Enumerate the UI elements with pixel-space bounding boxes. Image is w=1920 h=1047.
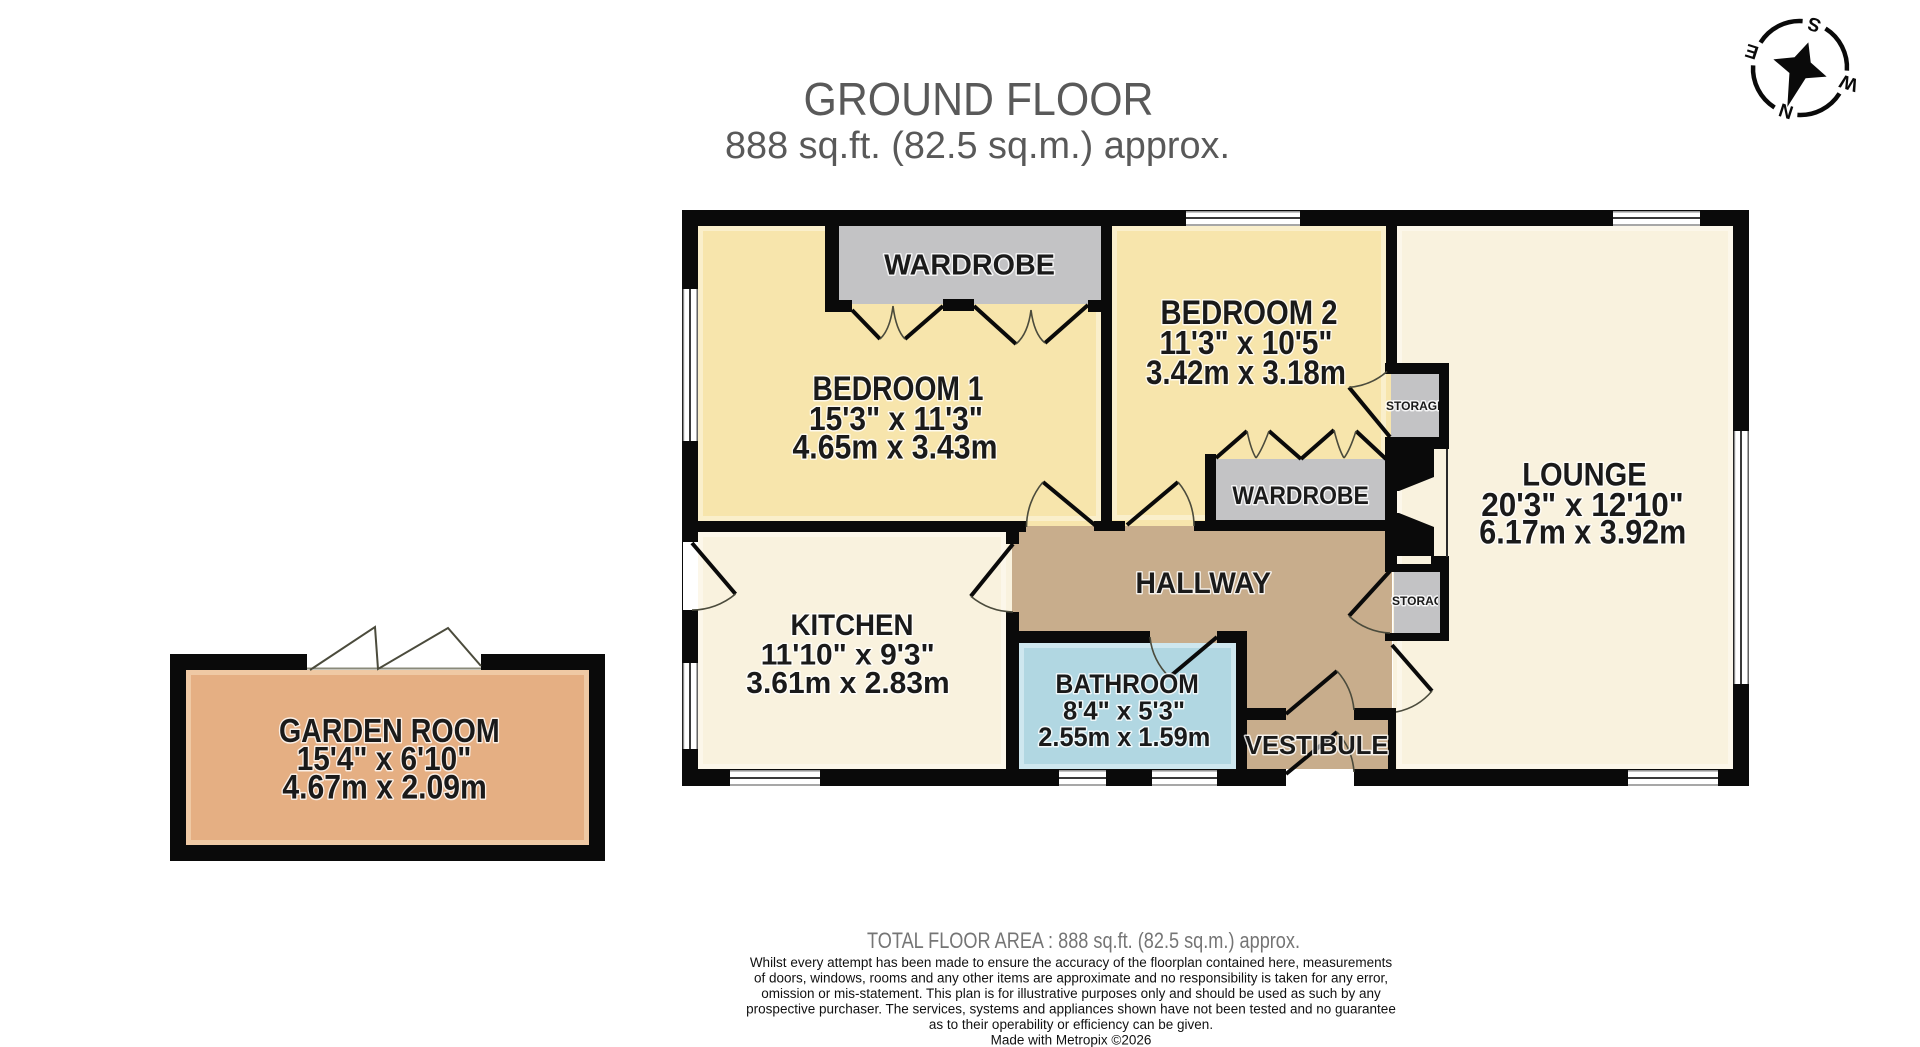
svg-text:2.55m x 1.59m: 2.55m x 1.59m [1038, 722, 1210, 752]
svg-text:of doors, windows, rooms and a: of doors, windows, rooms and any other i… [754, 971, 1388, 986]
svg-text:TOTAL FLOOR AREA : 888 sq.ft.: TOTAL FLOOR AREA : 888 sq.ft. (82.5 sq.m… [867, 928, 1300, 953]
svg-text:STORAGE: STORAGE [1386, 399, 1445, 413]
svg-text:WARDROBE: WARDROBE [1232, 482, 1368, 510]
svg-text:KITCHEN: KITCHEN [791, 609, 914, 642]
svg-text:6.17m x 3.92m: 6.17m x 3.92m [1479, 514, 1686, 552]
svg-text:WARDROBE: WARDROBE [884, 250, 1055, 282]
svg-text:4.67m x 2.09m: 4.67m x 2.09m [282, 769, 487, 807]
svg-text:VESTIBULE: VESTIBULE [1245, 730, 1389, 760]
svg-text:BATHROOM: BATHROOM [1056, 669, 1199, 699]
svg-text:HALLWAY: HALLWAY [1135, 567, 1271, 600]
svg-text:3.42m x 3.18m: 3.42m x 3.18m [1146, 354, 1346, 392]
svg-text:as to their operability or eff: as to their operability or efficiency ca… [929, 1017, 1213, 1032]
svg-text:Made with Metropix ©2026: Made with Metropix ©2026 [991, 1033, 1152, 1047]
svg-text:omission or mis-statement. Thi: omission or mis-statement. This plan is … [761, 986, 1381, 1001]
svg-text:GROUND FLOOR: GROUND FLOOR [804, 73, 1154, 125]
svg-text:888 sq.ft. (82.5 sq.m.) approx: 888 sq.ft. (82.5 sq.m.) approx. [725, 125, 1230, 167]
svg-text:prospective purchaser. The ser: prospective purchaser. The services, sys… [746, 1002, 1396, 1017]
svg-text:8'4" x 5'3": 8'4" x 5'3" [1063, 696, 1185, 726]
svg-text:3.61m x 2.83m: 3.61m x 2.83m [746, 665, 949, 700]
svg-text:Whilst every attempt has been: Whilst every attempt has been made to en… [750, 955, 1393, 970]
svg-text:4.65m x 3.43m: 4.65m x 3.43m [793, 429, 998, 467]
